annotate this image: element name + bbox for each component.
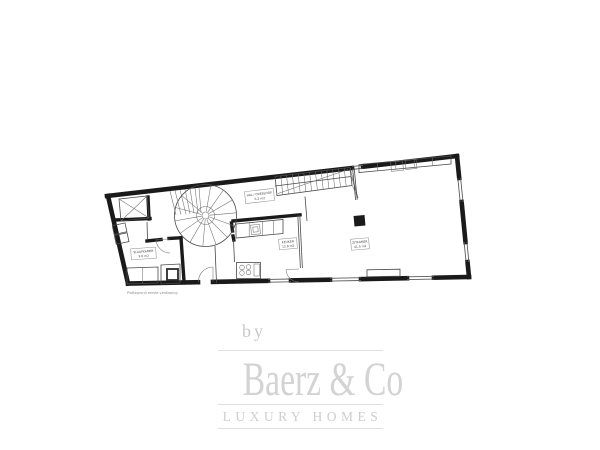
interior-partitions <box>147 168 357 283</box>
watermark-rule-middle <box>218 404 383 405</box>
room-label-living: ZITKAMER 41.5 m2 <box>351 238 370 251</box>
brand-name: Baerz & Co <box>243 352 359 408</box>
brand-watermark: by Baerz & Co LUXURY HOMES <box>218 320 383 432</box>
page-background: HAL / OVERLOOP 6.2 m2 SLAAPKAMER 9.6 m2 … <box>0 0 600 450</box>
brand-tagline: LUXURY HOMES <box>218 409 383 425</box>
spiral-staircase-icon <box>175 185 237 247</box>
interior-walls <box>116 197 300 281</box>
stove-icon <box>237 263 261 279</box>
structural-column <box>354 215 366 226</box>
room-label-bedroom: SLAAPKAMER 9.6 m2 <box>131 247 157 260</box>
room-label-hall: HAL / OVERLOOP 6.2 m2 <box>244 188 274 203</box>
watermark-rule-bottom <box>218 428 383 429</box>
svg-text:9.6 m2: 9.6 m2 <box>138 254 149 259</box>
room-label-kitchen: KEUKEN 12.8 m2 <box>279 238 298 250</box>
bench-icon <box>367 269 400 277</box>
plan-caption: Plattegrond eerste verdieping <box>127 291 178 295</box>
watermark-rule-top <box>218 350 383 351</box>
sink-icon <box>251 224 261 234</box>
kitchen-counter <box>236 220 283 239</box>
watermark-by-text: by <box>242 321 266 342</box>
